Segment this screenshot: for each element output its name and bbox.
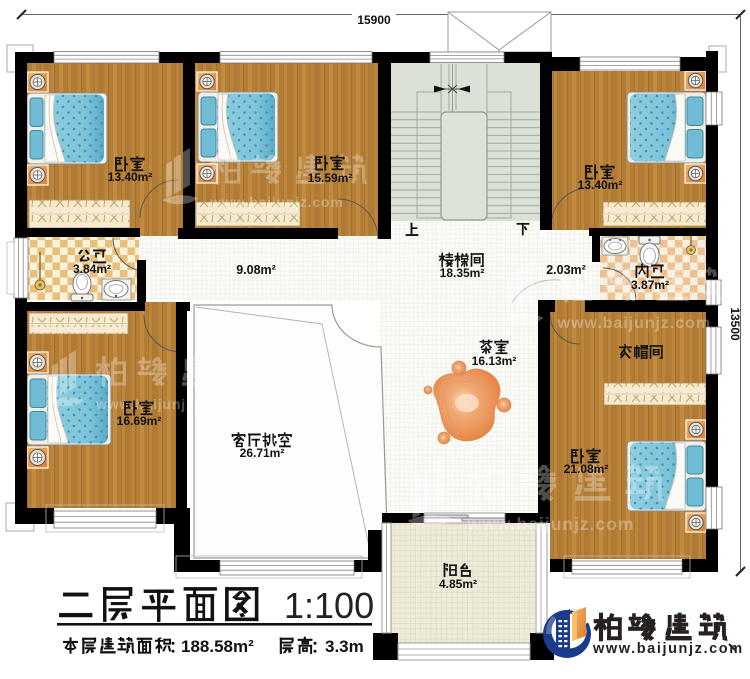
svg-text:9.08m²: 9.08m² — [236, 263, 276, 277]
svg-text:www.baijunjz.com: www.baijunjz.com — [557, 314, 712, 332]
svg-text:21.08m²: 21.08m² — [564, 462, 609, 476]
svg-text:16.13m²: 16.13m² — [472, 354, 517, 368]
svg-text:15900: 15900 — [357, 13, 391, 27]
svg-text:www.baijunjz.com: www.baijunjz.com — [467, 514, 635, 534]
svg-text:15.59m²: 15.59m² — [308, 171, 353, 185]
svg-text:3.84m²: 3.84m² — [73, 262, 111, 276]
svg-text:www.baijunjz.com: www.baijunjz.com — [592, 641, 744, 657]
svg-text:3.3m: 3.3m — [325, 637, 364, 656]
svg-text:2.03m²: 2.03m² — [546, 263, 586, 277]
svg-text:www.baijunjz.com: www.baijunjz.com — [95, 396, 230, 412]
svg-text:188.58m²: 188.58m² — [181, 637, 254, 656]
svg-text:www.baijunjz.com: www.baijunjz.com — [209, 194, 344, 210]
svg-text:4.85m²: 4.85m² — [439, 577, 477, 591]
svg-text:3.87m²: 3.87m² — [631, 278, 669, 292]
svg-text:13.40m²: 13.40m² — [578, 178, 623, 192]
svg-text:26.71m²: 26.71m² — [240, 446, 285, 460]
svg-text:13500: 13500 — [728, 307, 742, 341]
svg-text:18.35m²: 18.35m² — [440, 266, 485, 280]
svg-text:13.40m²: 13.40m² — [108, 170, 153, 184]
svg-text:16.69m²: 16.69m² — [117, 414, 162, 428]
svg-text:1:100: 1:100 — [284, 585, 374, 626]
